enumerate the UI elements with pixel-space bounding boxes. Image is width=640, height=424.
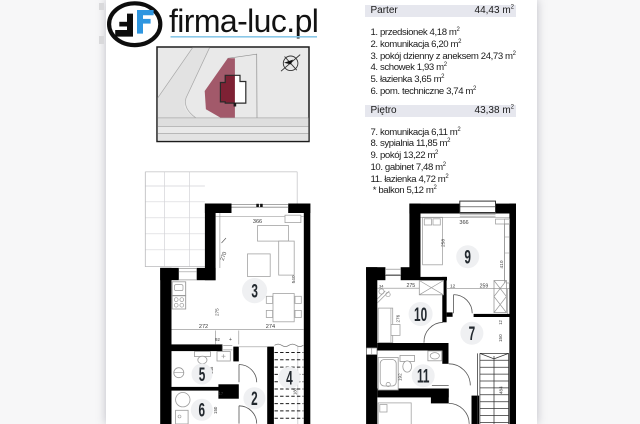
svg-text:274: 274 <box>266 324 275 330</box>
svg-text:11: 11 <box>417 367 430 387</box>
svg-text:270: 270 <box>220 251 229 262</box>
svg-text:192: 192 <box>398 373 403 381</box>
svg-text:150: 150 <box>498 334 503 342</box>
svg-text:258: 258 <box>440 239 446 247</box>
svg-text:366: 366 <box>459 220 468 226</box>
svg-text:259: 259 <box>480 283 489 289</box>
svg-text:12: 12 <box>450 283 456 289</box>
svg-text:276: 276 <box>395 314 400 322</box>
svg-text:484: 484 <box>499 386 504 394</box>
svg-text:+: + <box>229 337 232 343</box>
svg-text:12: 12 <box>498 319 503 324</box>
svg-text:9: 9 <box>464 248 471 268</box>
svg-text:180: 180 <box>293 387 298 395</box>
svg-text:2: 2 <box>251 389 258 409</box>
svg-text:7: 7 <box>469 324 476 344</box>
svg-text:5: 5 <box>199 365 206 385</box>
svg-text:366: 366 <box>253 219 262 225</box>
svg-text:17: 17 <box>219 391 224 396</box>
svg-text:34: 34 <box>379 284 384 289</box>
svg-text:92: 92 <box>215 337 221 342</box>
svg-text:3: 3 <box>251 282 258 302</box>
svg-text:150: 150 <box>213 406 218 414</box>
svg-text:6: 6 <box>199 401 206 421</box>
svg-text:540: 540 <box>291 275 297 283</box>
svg-text:410: 410 <box>499 260 505 268</box>
svg-text:272: 272 <box>199 324 208 330</box>
svg-text:4: 4 <box>286 369 293 389</box>
svg-text:275: 275 <box>215 308 220 316</box>
svg-text:275: 275 <box>406 283 415 289</box>
svg-text:10: 10 <box>414 305 427 325</box>
